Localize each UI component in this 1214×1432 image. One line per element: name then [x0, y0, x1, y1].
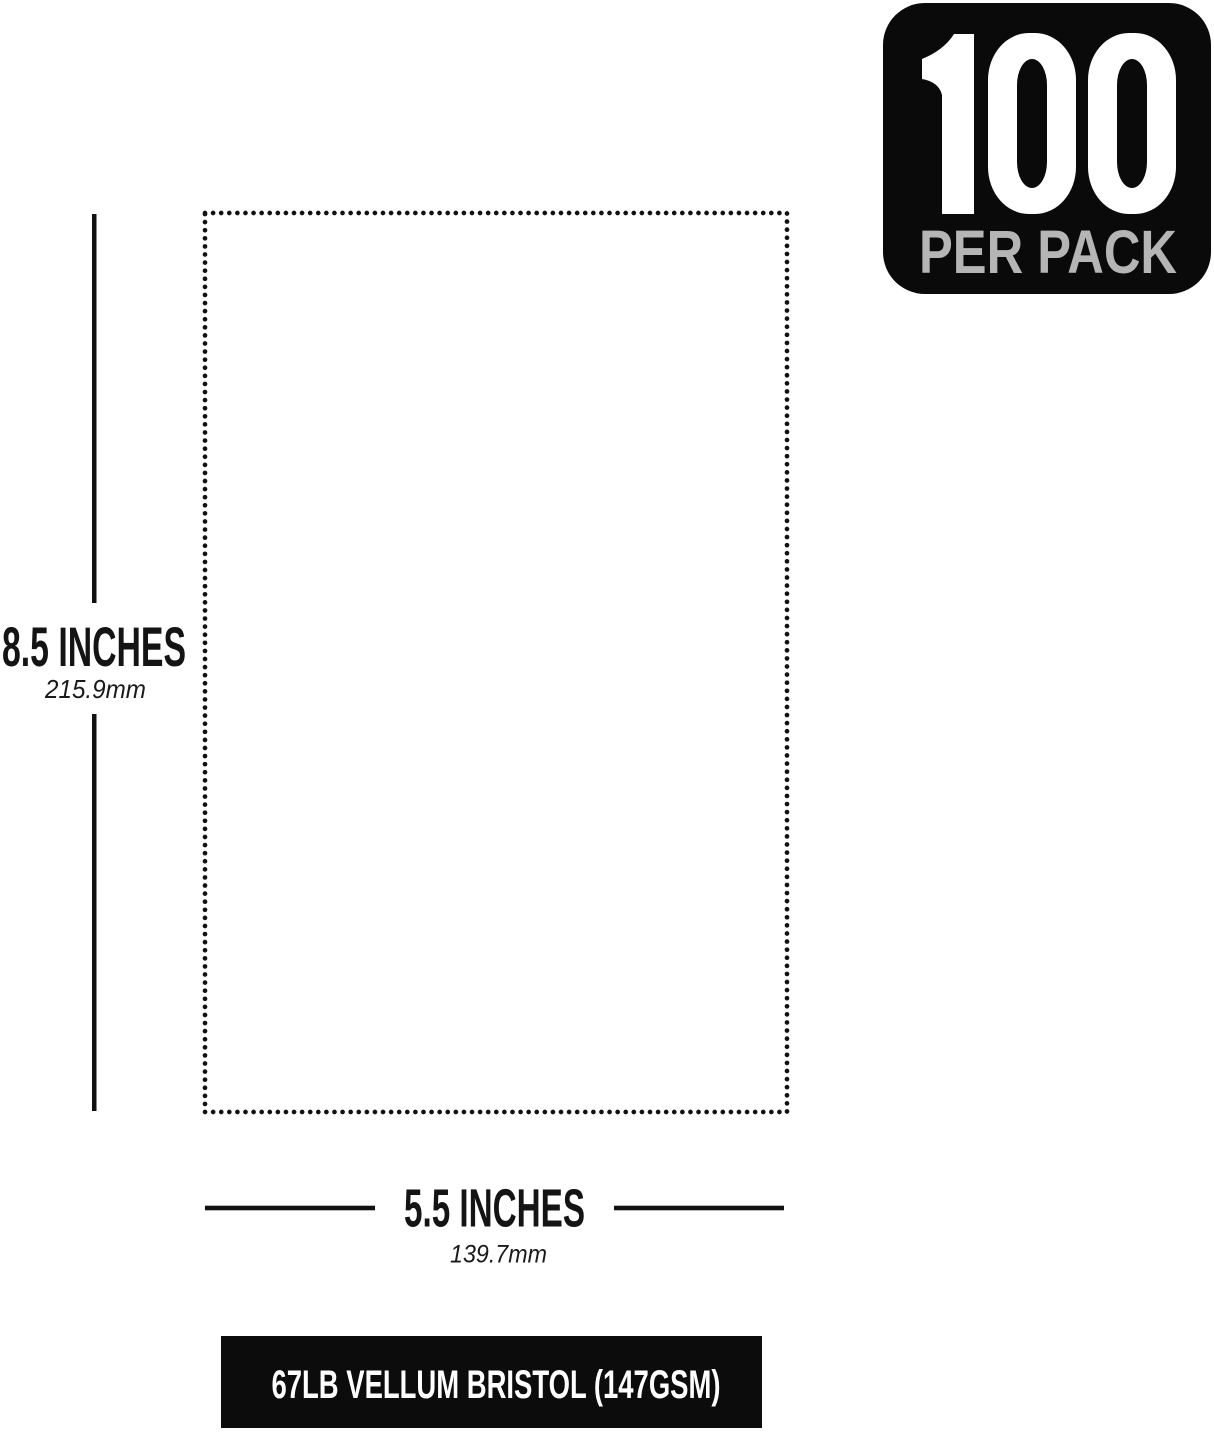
svg-text:8.5 INCHES: 8.5 INCHES — [2, 616, 186, 678]
svg-text:PER PACK: PER PACK — [919, 218, 1177, 287]
svg-text:215.9mm: 215.9mm — [44, 674, 146, 704]
svg-text:5.5 INCHES: 5.5 INCHES — [404, 1179, 585, 1239]
svg-text:67LB VELLUM BRISTOL (147GSM): 67LB VELLUM BRISTOL (147GSM) — [272, 1363, 721, 1407]
svg-text:139.7mm: 139.7mm — [450, 1241, 547, 1269]
